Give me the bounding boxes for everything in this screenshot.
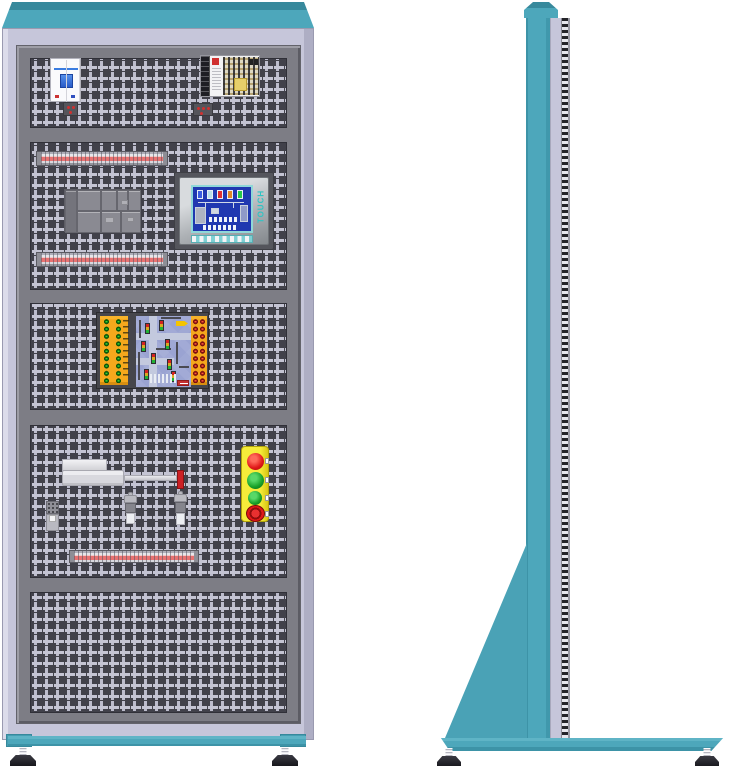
sensor-head bbox=[124, 495, 137, 503]
cylinder-rod bbox=[124, 475, 177, 481]
relay-label bbox=[49, 515, 56, 522]
leveling-foot bbox=[437, 748, 461, 766]
screen-key-row bbox=[209, 217, 237, 222]
button-tag bbox=[265, 458, 269, 464]
screen-bar bbox=[197, 190, 203, 199]
circuit-breaker bbox=[50, 58, 81, 102]
foot-base bbox=[695, 756, 719, 766]
sensor-body bbox=[175, 502, 186, 513]
screen-bar bbox=[237, 190, 243, 199]
screen-tank bbox=[240, 205, 248, 222]
button-tag bbox=[265, 495, 269, 501]
psu-text-lines bbox=[212, 68, 221, 92]
switching-power-supply bbox=[200, 55, 260, 97]
side-column bbox=[526, 18, 550, 738]
traffic-light-icon bbox=[145, 370, 148, 379]
cabinet-top-cap bbox=[2, 2, 314, 28]
foot-base bbox=[437, 756, 461, 766]
breaker-red-mark bbox=[55, 95, 59, 98]
screen-bar bbox=[227, 190, 233, 199]
foot-stem bbox=[704, 748, 711, 757]
button-tag bbox=[265, 511, 269, 517]
din-terminal-rail-1 bbox=[37, 152, 167, 165]
relay-module-group bbox=[64, 189, 140, 232]
psu-transformer bbox=[234, 78, 247, 91]
green-jack-column bbox=[115, 318, 122, 383]
pneumatic-cylinder-body bbox=[62, 470, 124, 486]
wall-line bbox=[179, 366, 189, 368]
traffic-light-icon bbox=[152, 354, 155, 363]
hmi-touch-panel: TOUCH bbox=[174, 172, 274, 250]
traffic-light-icon bbox=[160, 321, 163, 330]
terminal-block-breaker bbox=[63, 102, 78, 116]
emergency-stop-button bbox=[246, 505, 265, 522]
sensor-lower bbox=[126, 513, 135, 524]
foot-stem bbox=[446, 748, 453, 757]
foot-base bbox=[10, 755, 36, 766]
panel-section-5 bbox=[30, 592, 287, 713]
red-jack-column bbox=[199, 318, 206, 383]
sensor-lower bbox=[176, 513, 185, 525]
traffic-light-training-board bbox=[96, 312, 209, 389]
hmi-screen bbox=[191, 185, 253, 233]
hmi-touch-label: TOUCH bbox=[257, 187, 266, 227]
screen-key-row bbox=[203, 225, 237, 230]
base-plate bbox=[435, 738, 729, 751]
module-box bbox=[77, 190, 101, 211]
zebra-crossing bbox=[150, 374, 176, 383]
button-tag bbox=[265, 477, 269, 483]
sensor-head bbox=[174, 494, 187, 502]
leveling-foot bbox=[10, 747, 36, 766]
side-top-cap bbox=[524, 2, 558, 18]
traffic-light-icon bbox=[166, 340, 169, 349]
support-bracket bbox=[445, 543, 527, 738]
cylinder-red-lever bbox=[177, 470, 184, 489]
breaker-blue-mark bbox=[71, 95, 75, 98]
wall-line bbox=[176, 342, 178, 364]
screen-bar bbox=[217, 190, 223, 199]
board-left-jack-strip bbox=[100, 316, 128, 385]
foot-stem bbox=[282, 747, 289, 756]
foot-base bbox=[272, 755, 298, 766]
base-front-bar bbox=[8, 736, 306, 746]
perforation-edge-strip bbox=[561, 18, 570, 738]
traffic-light-icon bbox=[142, 342, 145, 351]
green-button bbox=[247, 472, 264, 489]
red-jack-column bbox=[192, 318, 199, 383]
board-red-label bbox=[177, 380, 189, 386]
green-button-small bbox=[248, 491, 262, 505]
push-button-station bbox=[241, 446, 269, 522]
module-box bbox=[121, 211, 141, 233]
traffic-light-icon bbox=[146, 324, 149, 333]
proximity-sensor-2 bbox=[174, 491, 187, 525]
proximity-sensor-1 bbox=[124, 492, 137, 524]
psu-capacitor bbox=[249, 59, 253, 65]
screen-bar bbox=[207, 190, 213, 199]
screen-pump bbox=[211, 208, 219, 214]
illustration-stage: TOUCH bbox=[0, 0, 730, 766]
leveling-foot bbox=[272, 747, 298, 766]
screen-machine bbox=[195, 207, 206, 224]
green-jack-column bbox=[103, 318, 110, 383]
module-chip bbox=[121, 200, 128, 205]
jack-labels bbox=[123, 320, 129, 380]
module-box bbox=[77, 211, 101, 233]
din-terminal-rail-2 bbox=[37, 253, 167, 266]
board-right-jack-strip bbox=[191, 316, 207, 385]
module-chip bbox=[105, 217, 114, 223]
module-chip bbox=[127, 217, 134, 222]
din-terminal-rail-3 bbox=[70, 551, 198, 562]
psu-red-label bbox=[212, 58, 219, 65]
wall-line bbox=[139, 320, 141, 338]
screen-pipe bbox=[233, 202, 234, 208]
psu-terminal-strip bbox=[201, 56, 210, 96]
relay-top bbox=[46, 501, 59, 514]
wall-line bbox=[161, 317, 181, 319]
leveling-foot bbox=[695, 748, 719, 766]
front-view: TOUCH bbox=[0, 0, 320, 766]
sensor-body bbox=[125, 503, 136, 513]
module-box bbox=[128, 190, 141, 211]
wall-line bbox=[138, 352, 140, 380]
intersection-mimic bbox=[136, 316, 191, 387]
road-horizontal bbox=[136, 333, 191, 340]
breaker-seam bbox=[66, 60, 67, 102]
module-box bbox=[65, 190, 77, 233]
module-box bbox=[101, 190, 117, 211]
red-button bbox=[247, 453, 264, 470]
side-view bbox=[420, 0, 730, 766]
terminal-block-psu bbox=[193, 103, 213, 116]
foot-stem bbox=[20, 747, 27, 756]
psu-capacitor bbox=[254, 59, 258, 65]
side-lavender-strip bbox=[550, 18, 561, 738]
hmi-function-keys bbox=[191, 235, 253, 243]
yellow-arrow bbox=[176, 321, 188, 326]
mini-relay bbox=[46, 501, 59, 531]
traffic-light-icon bbox=[168, 360, 171, 369]
